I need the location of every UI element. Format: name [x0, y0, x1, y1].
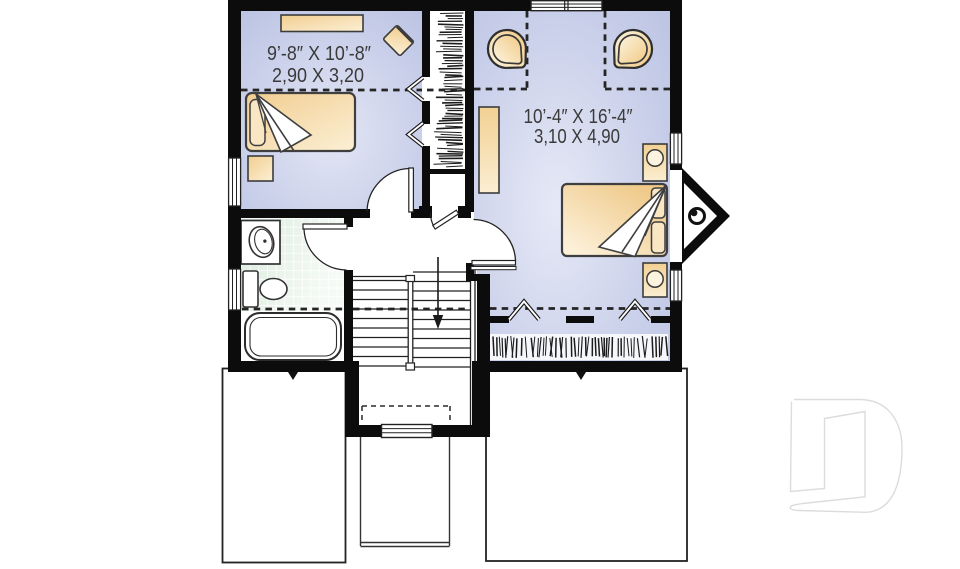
svg-text:9’-8″ X 10’-8″: 9’-8″ X 10’-8″ [267, 43, 371, 65]
svg-text:3,10 X 4,90: 3,10 X 4,90 [534, 126, 620, 148]
svg-text:10’-4″ X 16’-4″: 10’-4″ X 16’-4″ [524, 106, 633, 128]
svg-text:2,90 X 3,20: 2,90 X 3,20 [272, 65, 364, 87]
